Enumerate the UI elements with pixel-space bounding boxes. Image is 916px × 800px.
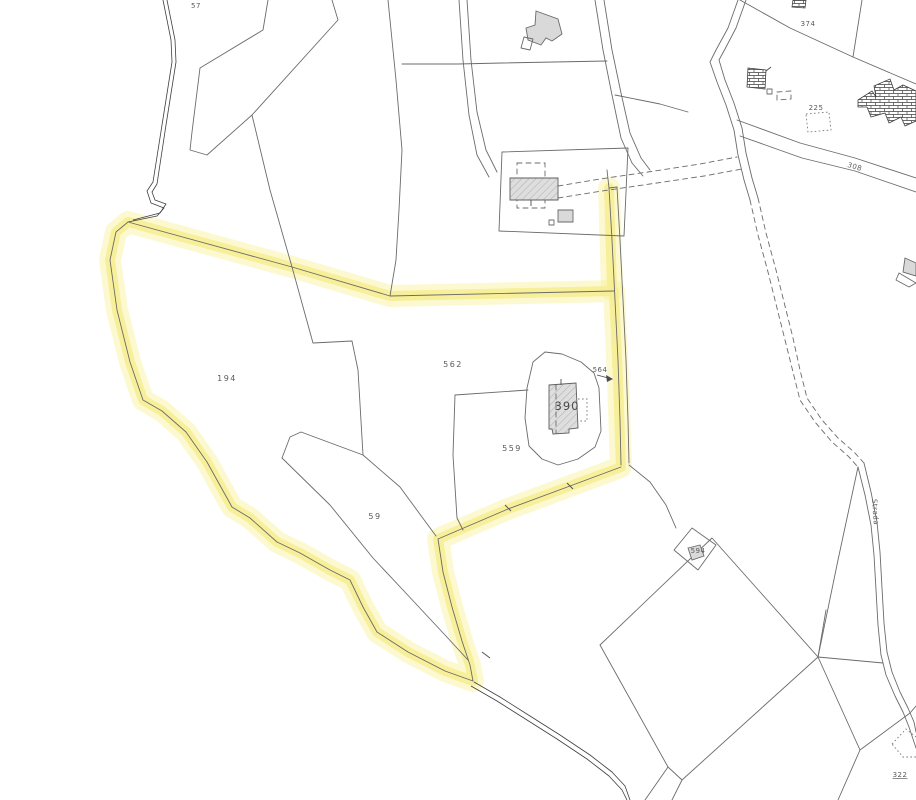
building-farm-hatched <box>510 178 558 200</box>
building-farm-annex <box>558 210 573 222</box>
parcel-label-225: 225 <box>809 104 824 112</box>
parcel-label-194: 194 <box>217 374 237 383</box>
building-225-dotted <box>806 112 831 132</box>
parcel-322-dotted-outline <box>892 729 916 757</box>
parcel-label-322: 322 <box>893 771 908 779</box>
parcel-label-374: 374 <box>801 20 816 28</box>
building-top-center <box>526 11 562 45</box>
building-brick-small <box>747 68 766 89</box>
building-right-edge <box>903 258 916 276</box>
parcel-label-559: 559 <box>502 444 522 453</box>
parcel-label-564: 564 <box>593 366 608 374</box>
stream-lines <box>128 0 176 222</box>
parcel-label-57: 57 <box>191 2 201 10</box>
building-brick-top-edge <box>792 0 806 8</box>
road-label-strada: Strada <box>870 499 880 526</box>
survey-tick <box>482 652 490 658</box>
cadastral-map-canvas[interactable]: 57 194 562 559 59 390 564 594 374 225 30… <box>0 0 916 800</box>
parcel-boundaries <box>110 0 916 800</box>
cadastral-map: 57 194 562 559 59 390 564 594 374 225 30… <box>0 0 916 800</box>
highlighted-parcel-boundary[interactable] <box>110 188 621 681</box>
parcel-label-594: 594 <box>691 547 706 555</box>
parcel-label-390: 390 <box>555 399 580 413</box>
parcel-label-562: 562 <box>443 360 463 369</box>
building-brick-large <box>858 79 916 126</box>
parcel-label-59: 59 <box>368 512 381 521</box>
